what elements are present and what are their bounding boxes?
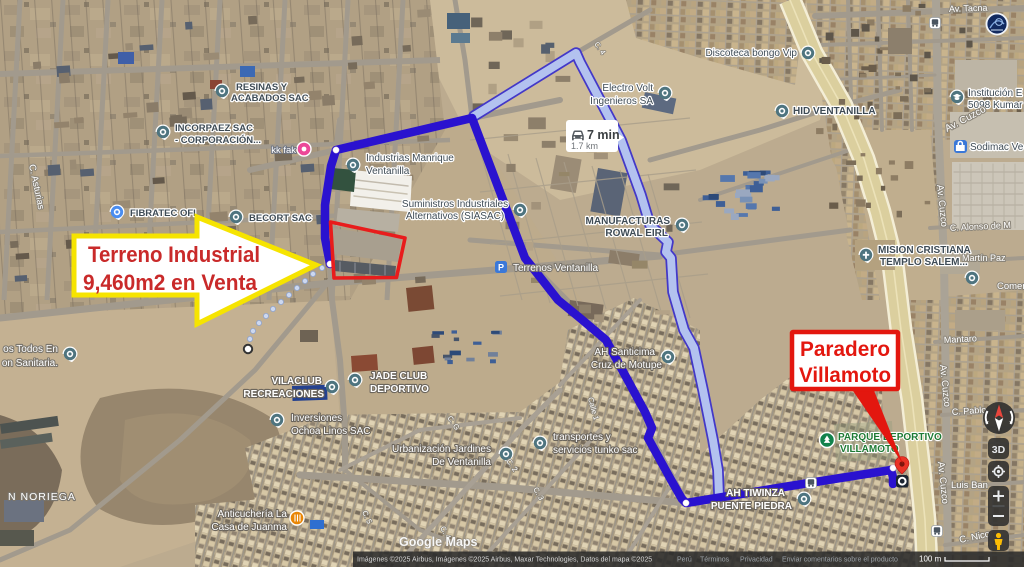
- svg-text:Paradero: Paradero: [800, 338, 890, 361]
- svg-text:os Todos En: os Todos En: [3, 344, 58, 355]
- svg-text:P: P: [498, 263, 504, 273]
- svg-text:Comer: Comer: [997, 281, 1024, 292]
- svg-text:Inversiones: Inversiones: [291, 413, 342, 424]
- svg-text:Mantaro: Mantaro: [944, 333, 978, 345]
- svg-text:AH TIWINZA: AH TIWINZA: [726, 488, 785, 499]
- svg-text:ACABADOS SAC: ACABADOS SAC: [231, 93, 309, 104]
- svg-text:Privacidad: Privacidad: [740, 557, 773, 564]
- svg-text:Martín Paz: Martín Paz: [962, 253, 1006, 263]
- svg-text:N NORIEGA: N NORIEGA: [8, 491, 76, 503]
- svg-text:Discoteca bongo Vip: Discoteca bongo Vip: [705, 48, 797, 59]
- svg-text:Terrenos Ventanilla: Terrenos Ventanilla: [513, 263, 598, 274]
- svg-text:Ventanilla: Ventanilla: [366, 166, 410, 177]
- svg-text:MANUFACTURAS: MANUFACTURAS: [586, 216, 671, 227]
- svg-text:AH Santicima: AH Santicima: [594, 347, 655, 358]
- svg-text:Villamoto: Villamoto: [799, 364, 891, 387]
- svg-text:Ingenieros SA: Ingenieros SA: [590, 96, 653, 107]
- svg-text:DEPORTIVO: DEPORTIVO: [370, 384, 429, 395]
- svg-text:Enviar comentarios sobre el pr: Enviar comentarios sobre el producto: [782, 557, 898, 564]
- svg-text:Sodimac Ve: Sodimac Ve: [970, 142, 1024, 153]
- svg-text:Luis Ban: Luis Ban: [951, 480, 988, 491]
- svg-text:Urbanización Jardines: Urbanización Jardines: [392, 444, 491, 455]
- svg-text:7 min: 7 min: [587, 128, 620, 142]
- svg-text:HID VENTANILLA: HID VENTANILLA: [793, 106, 876, 117]
- svg-text:ROWAL EIRL: ROWAL EIRL: [605, 228, 668, 239]
- svg-text:MISION CRISTIANA: MISION CRISTIANA: [878, 245, 971, 256]
- svg-text:3D: 3D: [992, 444, 1006, 456]
- svg-text:Anticuchería La: Anticuchería La: [218, 509, 288, 520]
- svg-text:TEMPLO SALEM...: TEMPLO SALEM...: [880, 257, 968, 268]
- svg-text:VILLAMOTO: VILLAMOTO: [840, 444, 899, 455]
- svg-text:Ochoa Linos SAC: Ochoa Linos SAC: [291, 426, 371, 437]
- svg-text:Alternativos (SIASAC): Alternativos (SIASAC): [406, 211, 504, 222]
- svg-text:transportes y: transportes y: [553, 432, 611, 443]
- svg-text:PUENTE PIEDRA: PUENTE PIEDRA: [711, 501, 792, 512]
- svg-text:Suministros Industriales: Suministros Industriales: [402, 199, 508, 210]
- svg-text:Terreno Industrial: Terreno Industrial: [88, 242, 260, 267]
- svg-text:Imágenes ©2025 Airbus, Imágene: Imágenes ©2025 Airbus, Imágenes ©2025 Ai…: [357, 556, 652, 564]
- svg-text:Perú: Perú: [677, 557, 692, 564]
- svg-text:9,460m2 en Venta: 9,460m2 en Venta: [83, 270, 258, 295]
- svg-text:Cruz de Motupe: Cruz de Motupe: [591, 360, 663, 371]
- svg-text:De Ventanilla: De Ventanilla: [432, 457, 491, 468]
- svg-text:1.7 km: 1.7 km: [571, 141, 598, 151]
- svg-text:on Sanitaria.: on Sanitaria.: [2, 358, 58, 369]
- svg-text:FIBRATEC OFI: FIBRATEC OFI: [130, 208, 196, 219]
- svg-text:Industrias Manrique: Industrias Manrique: [366, 153, 454, 164]
- svg-text:- CORPORACIÓN...: - CORPORACIÓN...: [175, 134, 261, 146]
- svg-text:JADE CLUB: JADE CLUB: [370, 371, 427, 382]
- svg-text:Casa de Juanma: Casa de Juanma: [211, 522, 287, 533]
- svg-text:100 m: 100 m: [919, 555, 942, 564]
- svg-text:BECORT SAC: BECORT SAC: [249, 213, 312, 224]
- svg-text:INCORPAEZ SAC: INCORPAEZ SAC: [175, 123, 253, 134]
- svg-text:RECREACIONES: RECREACIONES: [243, 389, 324, 400]
- svg-text:VILACLUB: VILACLUB: [271, 376, 322, 387]
- svg-text:Av. Tacna: Av. Tacna: [949, 3, 988, 14]
- svg-text:Electro Volt: Electro Volt: [602, 83, 653, 94]
- svg-text:kk fak: kk fak: [271, 145, 296, 156]
- svg-text:RESINAS Y: RESINAS Y: [236, 82, 288, 93]
- svg-text:Google Maps: Google Maps: [399, 535, 478, 549]
- svg-text:servicios tunko sac: servicios tunko sac: [553, 445, 637, 456]
- svg-text:Términos: Términos: [700, 557, 730, 564]
- svg-text:Institución E: Institución E: [968, 88, 1023, 99]
